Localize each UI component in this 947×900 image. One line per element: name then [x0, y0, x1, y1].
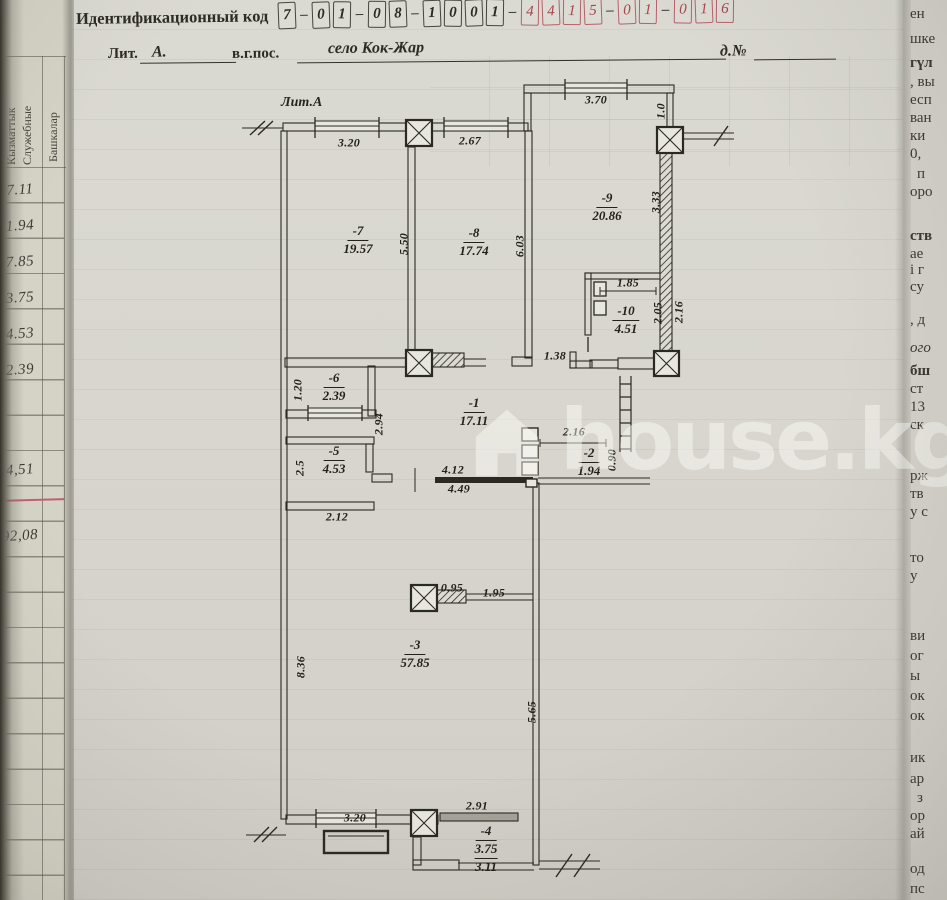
text-fragment: тв — [910, 486, 924, 503]
room-label-2: -2 1.94 — [578, 446, 601, 479]
dim-right-step: 1.0 — [654, 103, 669, 119]
room-label-9: -9 20.86 — [592, 191, 621, 224]
dim-2-05: 2.05 — [651, 302, 666, 324]
room-label-6: -6 2.39 — [323, 371, 346, 404]
porch-steps — [324, 831, 388, 853]
dim-4-12: 4.12 — [442, 463, 464, 478]
plan-lit-label: Лит.А — [281, 95, 322, 111]
dim-2-94: 2.94 — [372, 413, 387, 435]
text-fragment: од — [910, 861, 925, 878]
dim-top-3: 3.70 — [585, 93, 607, 108]
text-fragment: ок — [910, 688, 925, 705]
table-value: 2.39 — [0, 361, 41, 381]
table-header-line — [0, 167, 66, 168]
text-fragment: , д — [910, 312, 925, 329]
dim-6-03: 6.03 — [513, 235, 528, 257]
text-fragment: 0, — [910, 146, 921, 163]
text-fragment: п — [917, 166, 925, 183]
table-value: 92,08 — [0, 527, 41, 547]
page-edge-shadow — [895, 0, 911, 900]
table-column-line — [42, 56, 43, 900]
text-fragment: гүл — [910, 55, 933, 72]
table-header-line — [0, 56, 66, 57]
dim-4-49: 4.49 — [448, 482, 470, 497]
adjacent-page-left-table: Кызматтык Служебные Башкалар 7.11 1.94 7… — [0, 0, 72, 900]
text-fragment: ок — [910, 708, 925, 725]
dim-1-20: 1.20 — [291, 379, 306, 401]
text-fragment: ае — [910, 246, 923, 263]
room-label-1: -1 17.11 — [460, 396, 489, 429]
text-fragment: , вы — [910, 74, 935, 91]
dim-2-16: 2.16 — [672, 301, 687, 323]
text-fragment: ого — [910, 340, 931, 357]
text-fragment: пс — [910, 881, 925, 898]
column-header-rotated: Башкалар — [46, 112, 61, 162]
text-fragment: ск — [910, 417, 924, 434]
dim-2-5: 2.5 — [293, 460, 308, 476]
room-label-7: -7 19.57 — [343, 224, 372, 257]
dim-5-50: 5.50 — [397, 233, 412, 255]
dim-top-2: 2.67 — [459, 134, 481, 149]
room-label-5: -5 4.53 — [323, 444, 346, 477]
table-value: 4,51 — [0, 461, 41, 481]
text-fragment: у — [910, 568, 918, 585]
text-fragment: бш — [910, 363, 930, 380]
text-fragment: ен — [910, 6, 925, 23]
text-fragment: ки — [910, 128, 925, 145]
dim-bottom-1: 3.20 — [344, 811, 366, 826]
table-column-line — [64, 56, 65, 900]
text-fragment: ы — [910, 668, 920, 685]
dim-1-95: 1.95 — [483, 586, 505, 601]
text-fragment: і г — [910, 262, 924, 279]
wall-break-marks — [250, 121, 728, 877]
text-fragment: ай — [910, 826, 925, 843]
column-header-rotated: Кызматтык — [4, 107, 19, 165]
text-fragment: ик — [910, 750, 925, 767]
dim-2-16-room2: 2.16 — [563, 425, 585, 440]
room-label-10: -10 4.51 — [612, 304, 639, 337]
text-fragment: су — [910, 279, 924, 296]
table-value: 4.53 — [0, 325, 41, 345]
dim-2-91: 2.91 — [466, 799, 488, 814]
table-value: 1.94 — [0, 217, 41, 237]
text-fragment: ог — [910, 648, 924, 665]
text-fragment: ви — [910, 628, 925, 645]
dim-1-38: 1.38 — [544, 349, 566, 364]
dim-0-90: 0.90 — [605, 449, 620, 471]
dim-5-65: 5.65 — [525, 701, 540, 723]
text-fragment: ван — [910, 110, 932, 127]
room-label-8: -8 17.74 — [459, 226, 488, 259]
text-fragment: ор — [910, 808, 925, 825]
dim-0-95: 0.95 — [441, 581, 463, 596]
dim-2-12: 2.12 — [326, 510, 348, 525]
technical-passport-photo: Идентификационный код 7 – 0 1 – 0 8 – 1 … — [0, 0, 947, 900]
room-label-4: -4 3.75 3.11 — [475, 824, 498, 875]
text-fragment: оро — [910, 184, 933, 201]
text-fragment: ар — [910, 771, 924, 788]
text-fragment: 13 — [910, 399, 925, 416]
ladder-symbol — [620, 376, 631, 452]
dim-top-1: 3.20 — [338, 136, 360, 151]
text-fragment: есп — [910, 92, 932, 109]
column-header-rotated: Служебные — [20, 106, 35, 165]
text-fragment: з — [917, 790, 923, 807]
text-fragment: у с — [910, 504, 928, 521]
text-fragment: ст — [910, 381, 923, 398]
table-value: 7.85 — [0, 253, 41, 273]
table-value: 3.75 — [0, 289, 41, 309]
text-fragment: ств — [910, 228, 932, 245]
text-fragment: рж — [910, 468, 928, 485]
dim-3-33: 3.33 — [649, 191, 664, 213]
room-label-3: -3 57.85 — [400, 638, 429, 671]
text-fragment: шке — [910, 31, 935, 48]
dim-8-36: 8.36 — [294, 656, 309, 678]
text-fragment: то — [910, 550, 924, 567]
dim-1-85: 1.85 — [617, 276, 639, 291]
table-value: 7.11 — [0, 181, 41, 201]
adjacent-page-right-text: ен шке гүл , вы есп ван ки 0, п оро ств … — [903, 0, 947, 900]
